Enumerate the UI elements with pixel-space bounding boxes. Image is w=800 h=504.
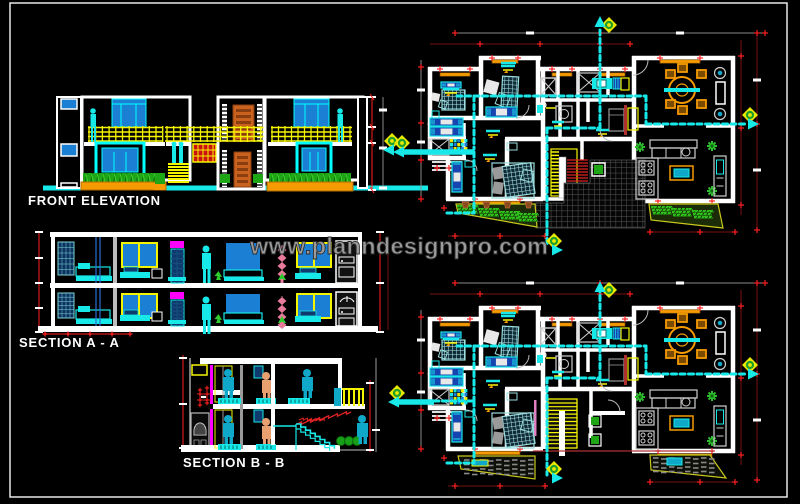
svg-text:SECTION B - B: SECTION B - B (183, 455, 285, 470)
svg-text:www.planndesignpro.com: www.planndesignpro.com (249, 233, 548, 259)
svg-text:SECTION A - A: SECTION A - A (19, 335, 120, 350)
svg-text:FRONT ELEVATION: FRONT ELEVATION (28, 193, 161, 208)
